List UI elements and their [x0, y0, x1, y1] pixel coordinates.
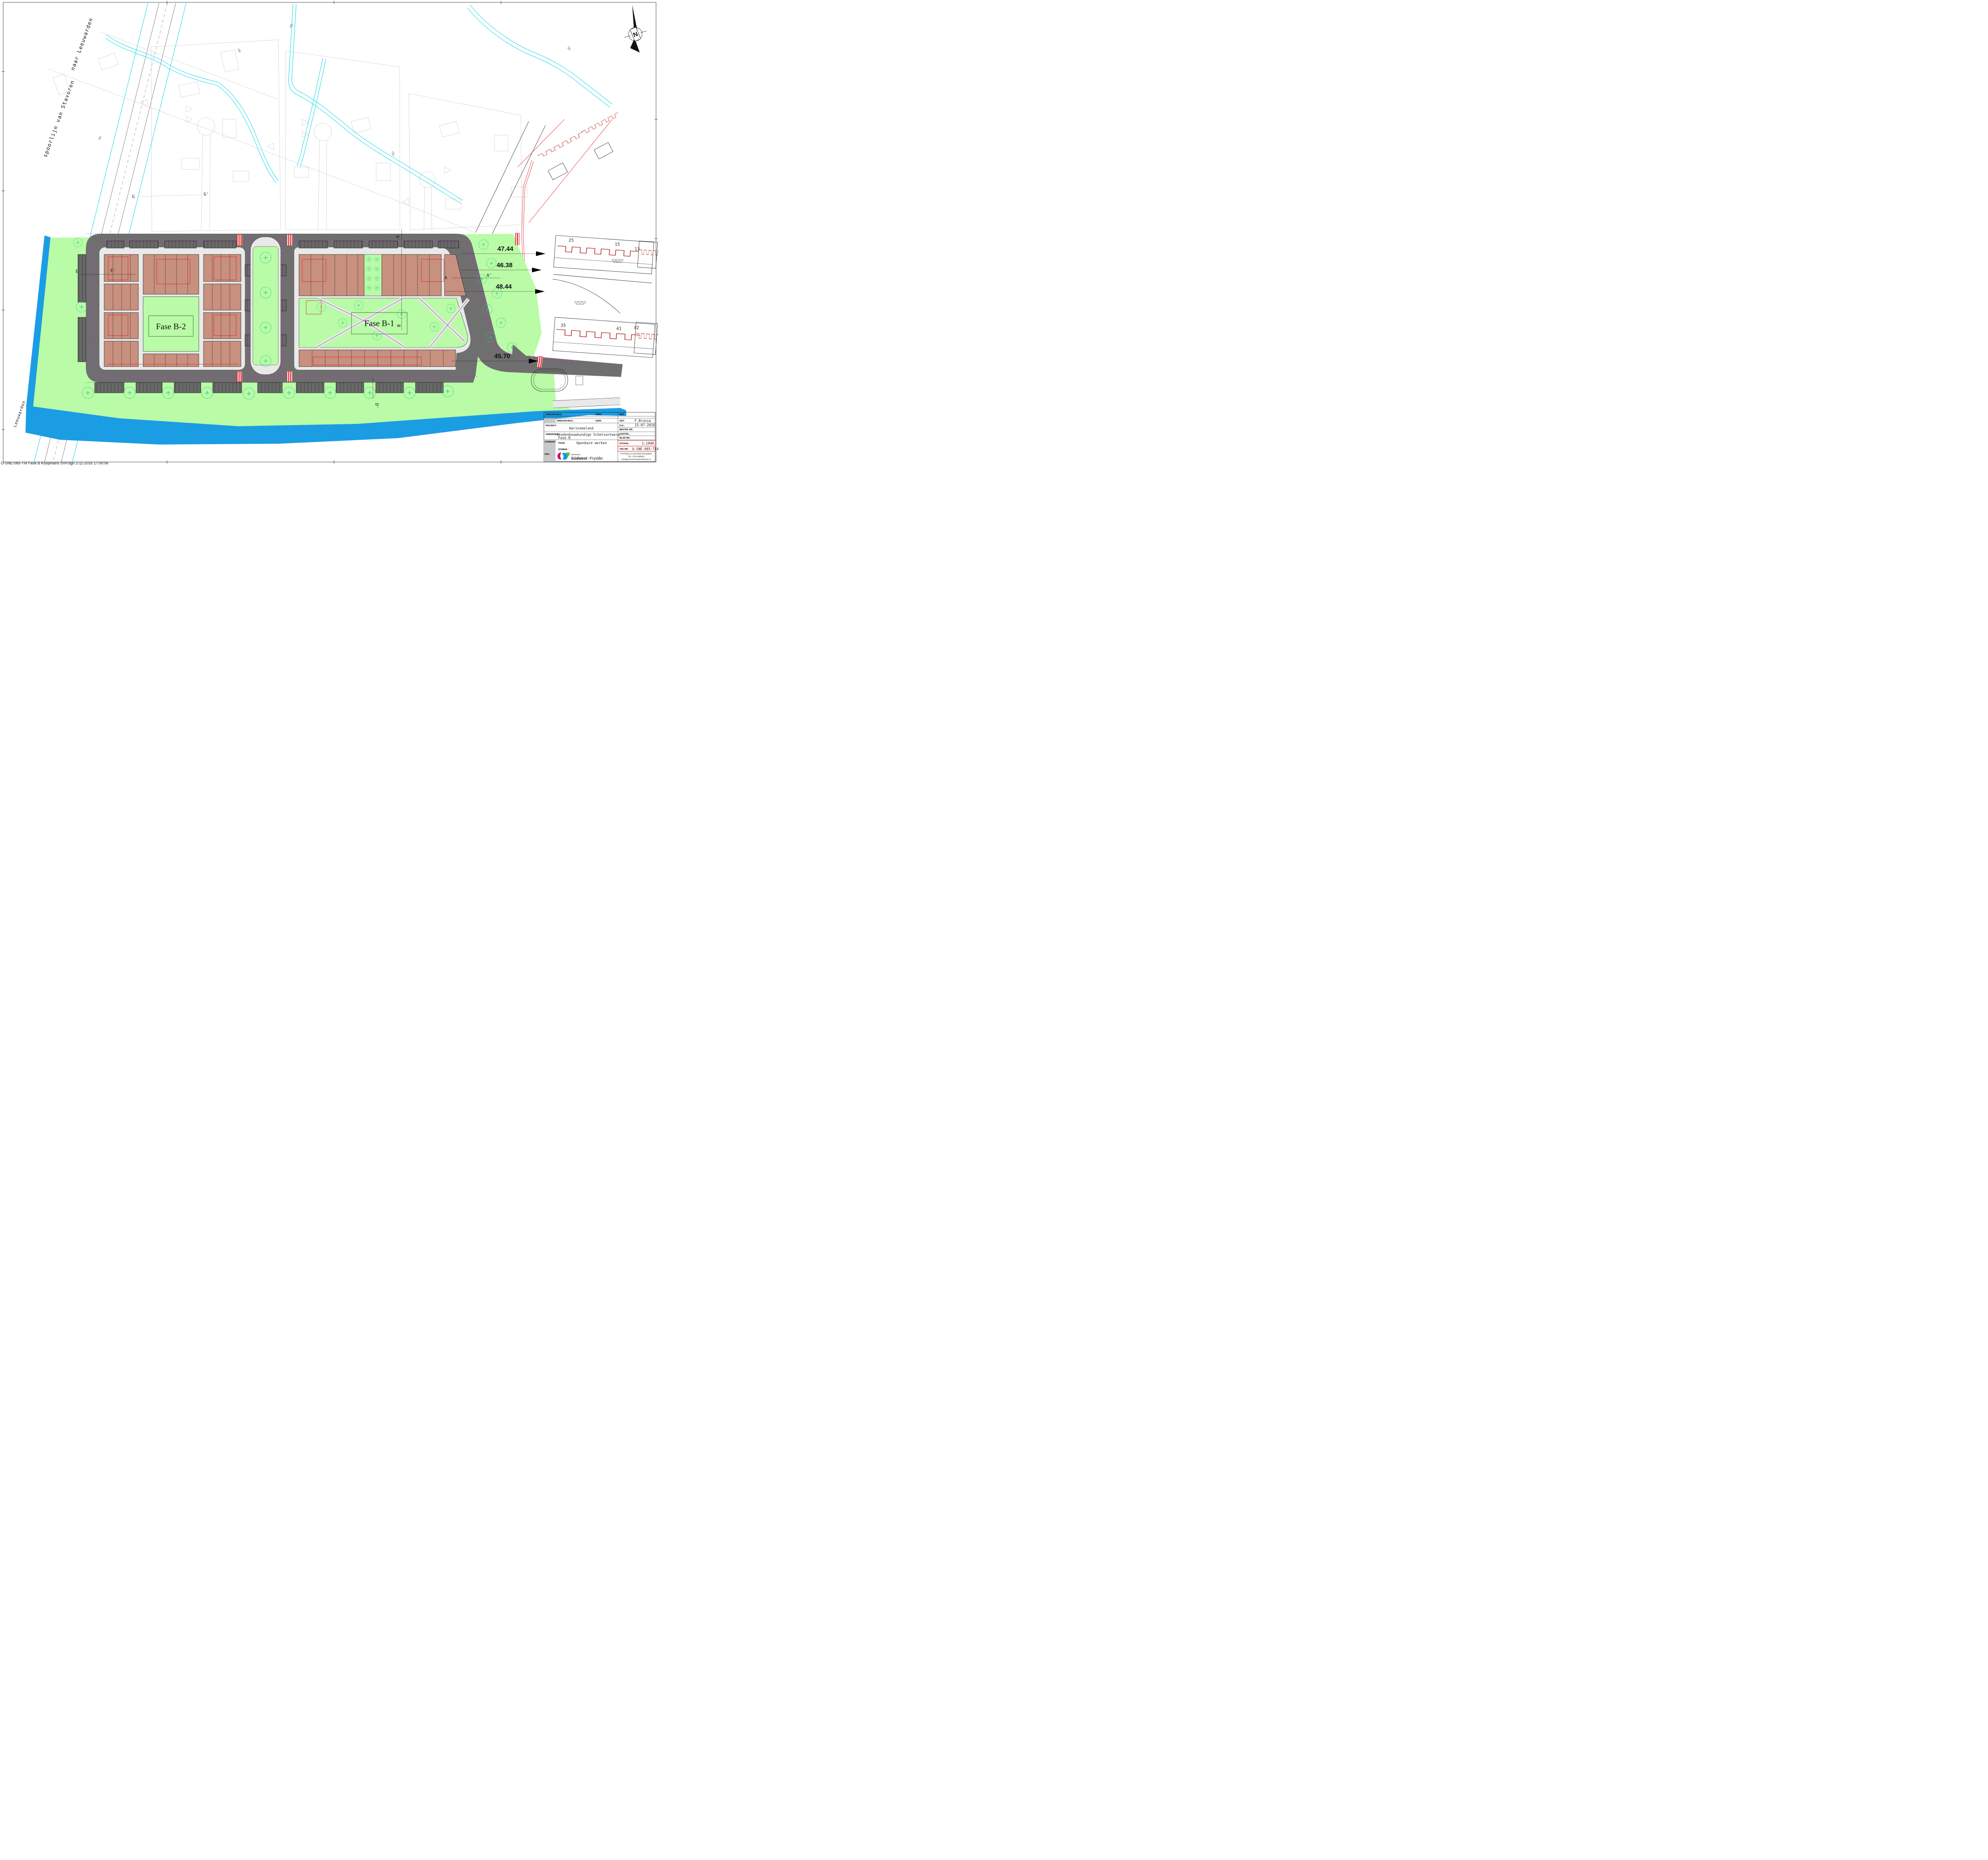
team-label: TEAM : — [558, 442, 566, 445]
dimension-47-44: 47.44 — [497, 246, 513, 252]
section-label-d-prime: D' — [374, 403, 379, 408]
house-number-25: 25 — [569, 238, 574, 243]
gew-label-1: GEW.: — [596, 414, 602, 416]
teknr-label: TEK.NR: — [619, 448, 629, 450]
house-number-41: 41 — [616, 326, 621, 331]
logo-name-rest: -Fryslân — [588, 456, 603, 461]
projekt-value: Harinxmaland — [569, 427, 593, 431]
schaal-label: SCHAAL: — [619, 443, 629, 445]
address-line-2: TEL. 0515-489000 — [628, 456, 645, 458]
projekt-label: PROJEKT: — [546, 425, 557, 427]
section-label-b: B — [396, 324, 401, 327]
house-number-15: 15 — [615, 242, 620, 247]
dimension-48-44: 48.44 — [496, 283, 512, 290]
onderdeel-value-2: Fase B — [558, 436, 571, 440]
dd-value: 15-07-2016 — [635, 423, 655, 427]
logo-gemeente-text: Gemeente — [571, 454, 580, 456]
section-label-a: A — [445, 275, 447, 280]
address-line-1: POSTBUS 10.000 8600 HA SNEEK — [620, 453, 652, 455]
team-value: Openbare werken — [577, 441, 607, 445]
section-label-e: E — [76, 269, 78, 274]
address-line-3: info@gemeentesudwestfryslan.nl — [621, 458, 651, 461]
get-label-1: GET: — [619, 414, 625, 416]
par-label: PAR : — [545, 453, 551, 456]
omschr-label-2: OMSCHR.WIJZ.: — [557, 420, 574, 422]
dimension-46-38: 46.38 — [497, 262, 513, 269]
aantbl-label: AANT.BL.: — [619, 433, 630, 435]
omschr-label-1: OMSCHR.WIJZ.: — [546, 414, 563, 416]
formaat-label: FORMAAT : — [545, 441, 557, 443]
fase-b2-label: Fase B-2 — [156, 322, 186, 331]
drawing-filename-footer: O-SNE-085-TI4 Fase B Koopmans SVP.dgn 2-… — [1, 461, 109, 465]
schaal-value: 1:1000 — [642, 442, 654, 446]
logo-name-accent: Súdwest — [571, 456, 588, 461]
house-number-13: 13 — [635, 247, 640, 252]
section-label-e-prime: E' — [111, 268, 116, 273]
section-label-b-prime: B' — [395, 235, 400, 241]
get-value: F.Brunia — [635, 419, 651, 423]
dimension-45-70: 45.70 — [494, 353, 510, 360]
bestek-label: BESTEK NR.: — [619, 429, 634, 431]
bladnr-label: BLAD NR.: — [619, 437, 631, 439]
domein-label: DOMEIN : — [558, 448, 569, 451]
section-label-g-prime: G' — [204, 192, 209, 197]
get-label-2: GET: — [619, 420, 625, 422]
house-number-35: 35 — [561, 323, 566, 328]
site-plan-drawing: spoorlijn van Stavoren naar Leeuwarden L… — [0, 0, 658, 465]
dd-label: D.D.: — [619, 425, 625, 427]
section-label-a-prime: A' — [487, 273, 492, 278]
median-green-strip — [250, 237, 281, 375]
fase-b1-label: Fase B-1 — [364, 318, 394, 328]
section-label-g: G — [132, 194, 135, 199]
teknr-value: O-SNE-085-TI4 — [632, 447, 658, 451]
house-number-42: 42 — [634, 325, 639, 330]
gew-label-2: GEW.: — [596, 420, 602, 422]
